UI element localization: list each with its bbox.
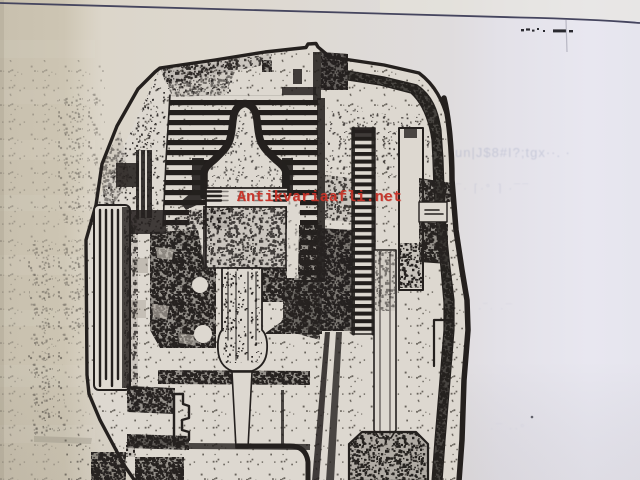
svg-text:Antikvariaafli.net: Antikvariaafli.net	[238, 190, 403, 206]
svg-text:·‾· ·¯: ·‾· ·¯	[478, 303, 514, 315]
svg-text:un|J$8#I?;tgx··. ∙: un|J$8#I?;tgx··. ∙	[455, 145, 570, 160]
svg-text:·¯ ··°: ·¯ ··°	[490, 423, 527, 435]
svg-text:¯· ⌈·° ⌉ ·¯¯: ¯· ⌈·° ⌉ ·¯¯	[454, 183, 530, 195]
